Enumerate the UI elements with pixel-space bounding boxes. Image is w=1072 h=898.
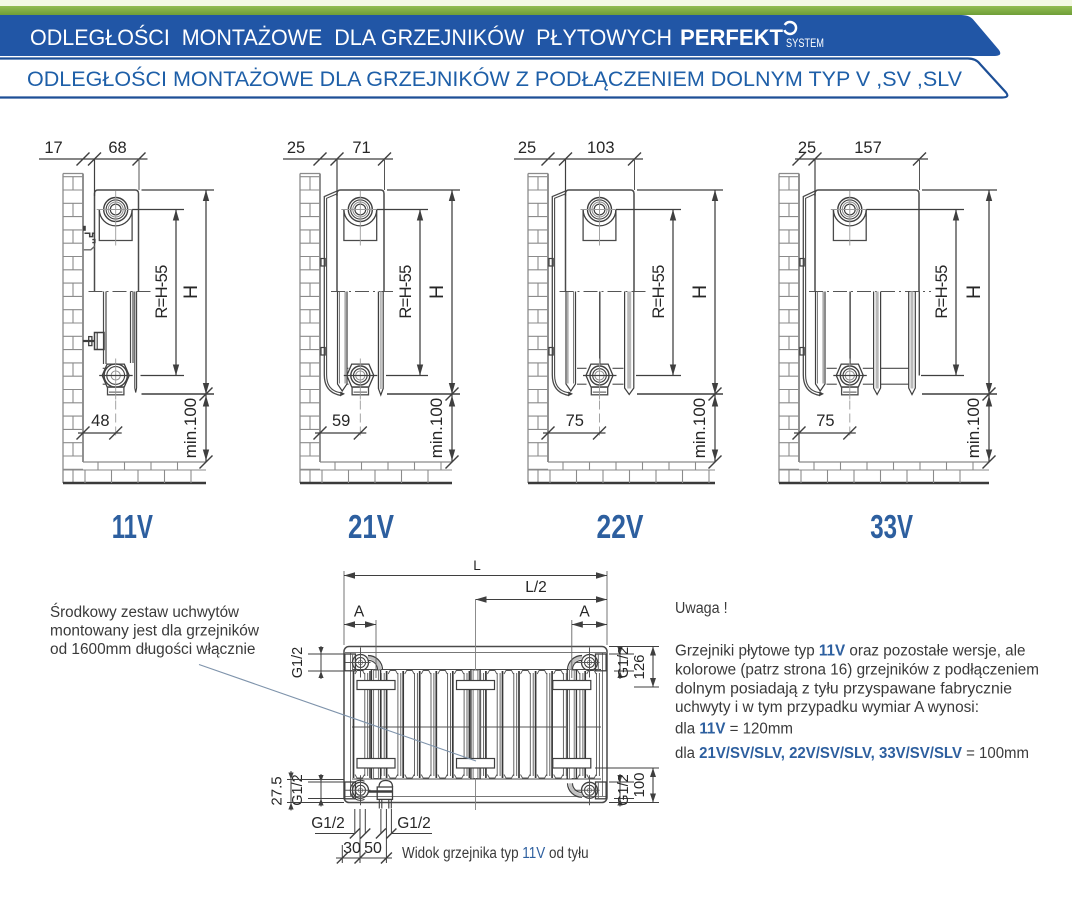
svg-text:17: 17 — [44, 139, 62, 157]
svg-text:SYSTEM: SYSTEM — [786, 38, 824, 50]
svg-text:L: L — [473, 558, 481, 573]
svg-text:od 1600mm długości włącznie: od 1600mm długości włącznie — [50, 641, 256, 658]
svg-text:R=H-55: R=H-55 — [933, 265, 951, 319]
svg-text:Uwaga !: Uwaga ! — [675, 600, 728, 617]
svg-text:68: 68 — [108, 139, 126, 157]
svg-text:33V: 33V — [870, 508, 913, 545]
svg-text:min.100: min.100 — [690, 398, 709, 458]
svg-text:G1/2: G1/2 — [290, 647, 306, 678]
svg-text:min.100: min.100 — [181, 398, 200, 458]
svg-text:H: H — [426, 285, 448, 299]
svg-text:G1/2: G1/2 — [616, 647, 632, 678]
svg-text:Środkowy zestaw uchwytów: Środkowy zestaw uchwytów — [50, 603, 240, 621]
svg-text:ODLEGŁOŚCI MONTAŻOWE DLA GRZ: ODLEGŁOŚCI MONTAŻOWE DLA GRZEJNIKÓW PŁYT… — [30, 25, 672, 50]
svg-text:dla 11V = 120mm: dla 11V = 120mm — [675, 721, 793, 738]
svg-text:11V: 11V — [112, 508, 153, 545]
svg-text:R=H-55: R=H-55 — [153, 265, 171, 319]
svg-text:min.100: min.100 — [964, 398, 983, 458]
svg-text:126: 126 — [631, 654, 648, 679]
svg-text:Grzejniki płytowe typ 11V oraz: Grzejniki płytowe typ 11V oraz pozostałe… — [675, 643, 1026, 660]
svg-text:H: H — [689, 285, 711, 299]
svg-text:kolorowe (patrz strona 16) grz: kolorowe (patrz strona 16) grzejników z … — [675, 662, 1039, 679]
svg-text:dla 21V/SV/SLV, 22V/SV/SLV, 33: dla 21V/SV/SLV, 22V/SV/SLV, 33V/SV/SLV =… — [675, 745, 1029, 762]
svg-text:50: 50 — [364, 840, 382, 857]
svg-text:59: 59 — [332, 412, 350, 430]
svg-text:Widok grzejnika typ 11V od tył: Widok grzejnika typ 11V od tyłu — [402, 845, 589, 862]
svg-text:H: H — [180, 285, 202, 299]
svg-text:G1/2: G1/2 — [290, 774, 306, 805]
svg-text:R=H-55: R=H-55 — [397, 265, 415, 319]
svg-text:G1/2: G1/2 — [397, 815, 431, 832]
svg-text:R=H-55: R=H-55 — [650, 265, 668, 319]
svg-text:ODLEGŁOŚCI MONTAŻOWE DLA GRZEJ: ODLEGŁOŚCI MONTAŻOWE DLA GRZEJNIKÓW Z PO… — [27, 66, 963, 91]
svg-text:25: 25 — [518, 139, 536, 157]
svg-text:G1/2: G1/2 — [311, 815, 345, 832]
svg-text:PERFEKT: PERFEKT — [680, 25, 783, 50]
svg-text:75: 75 — [816, 412, 834, 430]
svg-text:25: 25 — [287, 139, 305, 157]
svg-text:montowany jest dla grzejników: montowany jest dla grzejników — [50, 623, 260, 640]
svg-text:G1/2: G1/2 — [616, 774, 632, 805]
svg-text:103: 103 — [587, 139, 615, 157]
svg-text:48: 48 — [91, 412, 109, 430]
svg-text:25: 25 — [798, 139, 816, 157]
svg-text:L/2: L/2 — [525, 579, 547, 596]
svg-text:157: 157 — [854, 139, 882, 157]
svg-text:A: A — [354, 604, 365, 621]
svg-text:71: 71 — [352, 139, 370, 157]
svg-text:100: 100 — [631, 772, 648, 797]
svg-text:uchwyty i w tym przypadku wymi: uchwyty i w tym przypadku wymiar A wynos… — [675, 699, 979, 716]
svg-text:min.100: min.100 — [427, 398, 446, 458]
svg-text:H: H — [963, 285, 985, 299]
svg-text:30: 30 — [343, 840, 361, 857]
svg-text:A: A — [579, 604, 590, 621]
svg-text:22V: 22V — [597, 508, 644, 545]
svg-text:21V: 21V — [348, 508, 394, 545]
svg-text:75: 75 — [566, 412, 584, 430]
svg-text:27.5: 27.5 — [269, 776, 286, 805]
svg-text:dolnym posiadają z tyłu przysp: dolnym posiadają z tyłu przyspawane fabr… — [675, 681, 1012, 698]
